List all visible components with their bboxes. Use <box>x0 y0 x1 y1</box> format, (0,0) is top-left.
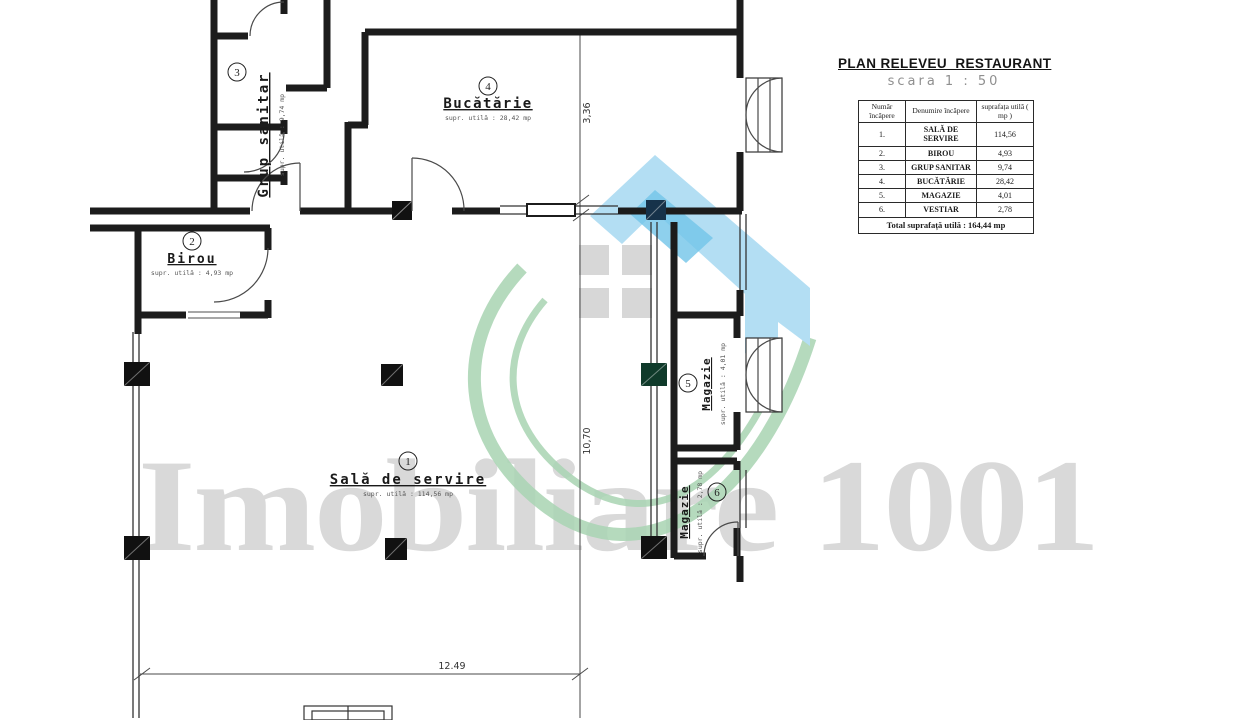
table-row: 6. VESTIAR 2,78 <box>859 203 1034 217</box>
table-row: 2. BIROU 4,93 <box>859 146 1034 160</box>
plan-title: PLAN RELEVEU RESTAURANT <box>838 56 1050 71</box>
room-name-cell: MAGAZIE <box>906 189 977 203</box>
room-number-4: 4 <box>485 81 491 93</box>
room-area-grup-sanitar: supr. utilă : 9,74 mp <box>278 94 286 176</box>
table-header-area: suprafața utilă ( mp ) <box>977 101 1034 123</box>
room-name-cell: GRUP SANITAR <box>906 160 977 174</box>
room-area-sala: supr. utilă : 114,56 mp <box>363 490 453 498</box>
room-number-3: 3 <box>234 67 240 79</box>
room-label-magazie-5: Magazie <box>700 357 713 410</box>
room-area-cell: 9,74 <box>977 160 1034 174</box>
room-area-cell: 4,01 <box>977 189 1034 203</box>
room-label-bucatarie: Bucătărie <box>443 96 532 112</box>
room-area-bucatarie: supr. utilă : 28,42 mp <box>445 114 531 122</box>
floor-plan-document: Imobiliare 1001 <box>0 0 1240 720</box>
table-header-name: Denumire încăpere <box>906 101 977 123</box>
floor-plan-canvas: Imobiliare 1001 <box>0 0 1240 720</box>
dimension-bottom-width: 12.49 <box>438 661 465 672</box>
room-name-cell: SALĂ DE SERVIRE <box>906 123 977 146</box>
title-block: PLAN RELEVEU RESTAURANT scara 1 : 50 <box>838 56 1050 89</box>
room-area-magazie-5: supr. utilă : 4,01 mp <box>719 343 727 425</box>
room-label-grup-sanitar: Grup sanitar <box>256 72 272 197</box>
room-area-cell: 2,78 <box>977 203 1034 217</box>
door-arc <box>412 158 464 211</box>
room-num-cell: 1. <box>859 123 906 146</box>
logo-window-icon <box>579 245 652 318</box>
table-total-row: Total suprafață utilă : 164,44 mp <box>859 217 1034 234</box>
table-header-number: Număr încăpere <box>859 101 906 123</box>
room-num-cell: 3. <box>859 160 906 174</box>
double-door-top <box>746 78 782 152</box>
room-number-1: 1 <box>405 456 411 468</box>
room-area-cell: 28,42 <box>977 175 1034 189</box>
room-number-6: 6 <box>714 487 720 499</box>
table-row: 1. SALĂ DE SERVIRE 114,56 <box>859 123 1034 146</box>
room-area-magazie-6: supr. utilă : 2,78 mp <box>696 471 704 553</box>
birou-window <box>186 308 240 322</box>
dimension-hall-height: 10,70 <box>582 427 593 454</box>
table-row: 3. GRUP SANITAR 9,74 <box>859 160 1034 174</box>
room-label-magazie-6: Magazie <box>678 485 691 538</box>
room-area-cell: 4,93 <box>977 146 1034 160</box>
room-name-cell: VESTIAR <box>906 203 977 217</box>
room-num-cell: 4. <box>859 175 906 189</box>
room-num-cell: 6. <box>859 203 906 217</box>
bottom-detail <box>304 706 392 720</box>
table-total: Total suprafață utilă : 164,44 mp <box>859 217 1034 234</box>
area-table: Număr încăpere Denumire încăpere suprafa… <box>858 100 1034 234</box>
room-number-5: 5 <box>685 378 691 390</box>
room-area-cell: 114,56 <box>977 123 1034 146</box>
room-number-2: 2 <box>189 236 195 248</box>
room-name-cell: BIROU <box>906 146 977 160</box>
dimension-kitchen-height: 3,36 <box>582 102 593 123</box>
table-row: 4. BUCĂTĂRIE 28,42 <box>859 175 1034 189</box>
table-header-row: Număr încăpere Denumire încăpere suprafa… <box>859 101 1034 123</box>
door-arc <box>250 2 284 36</box>
watermark: Imobiliare 1001 <box>138 432 1098 579</box>
table-row: 5. MAGAZIE 4,01 <box>859 189 1034 203</box>
kitchen-wall-segment <box>527 204 575 216</box>
room-name-cell: BUCĂTĂRIE <box>906 175 977 189</box>
room-num-cell: 2. <box>859 146 906 160</box>
room-area-birou: supr. utilă : 4,93 mp <box>151 269 233 277</box>
plan-scale: scara 1 : 50 <box>838 74 1050 89</box>
room-label-sala: Sală de servire <box>330 472 486 488</box>
dimension-lines <box>134 32 589 718</box>
room-num-cell: 5. <box>859 189 906 203</box>
double-door-magazie <box>746 338 782 412</box>
room-label-birou: Birou <box>167 252 216 267</box>
